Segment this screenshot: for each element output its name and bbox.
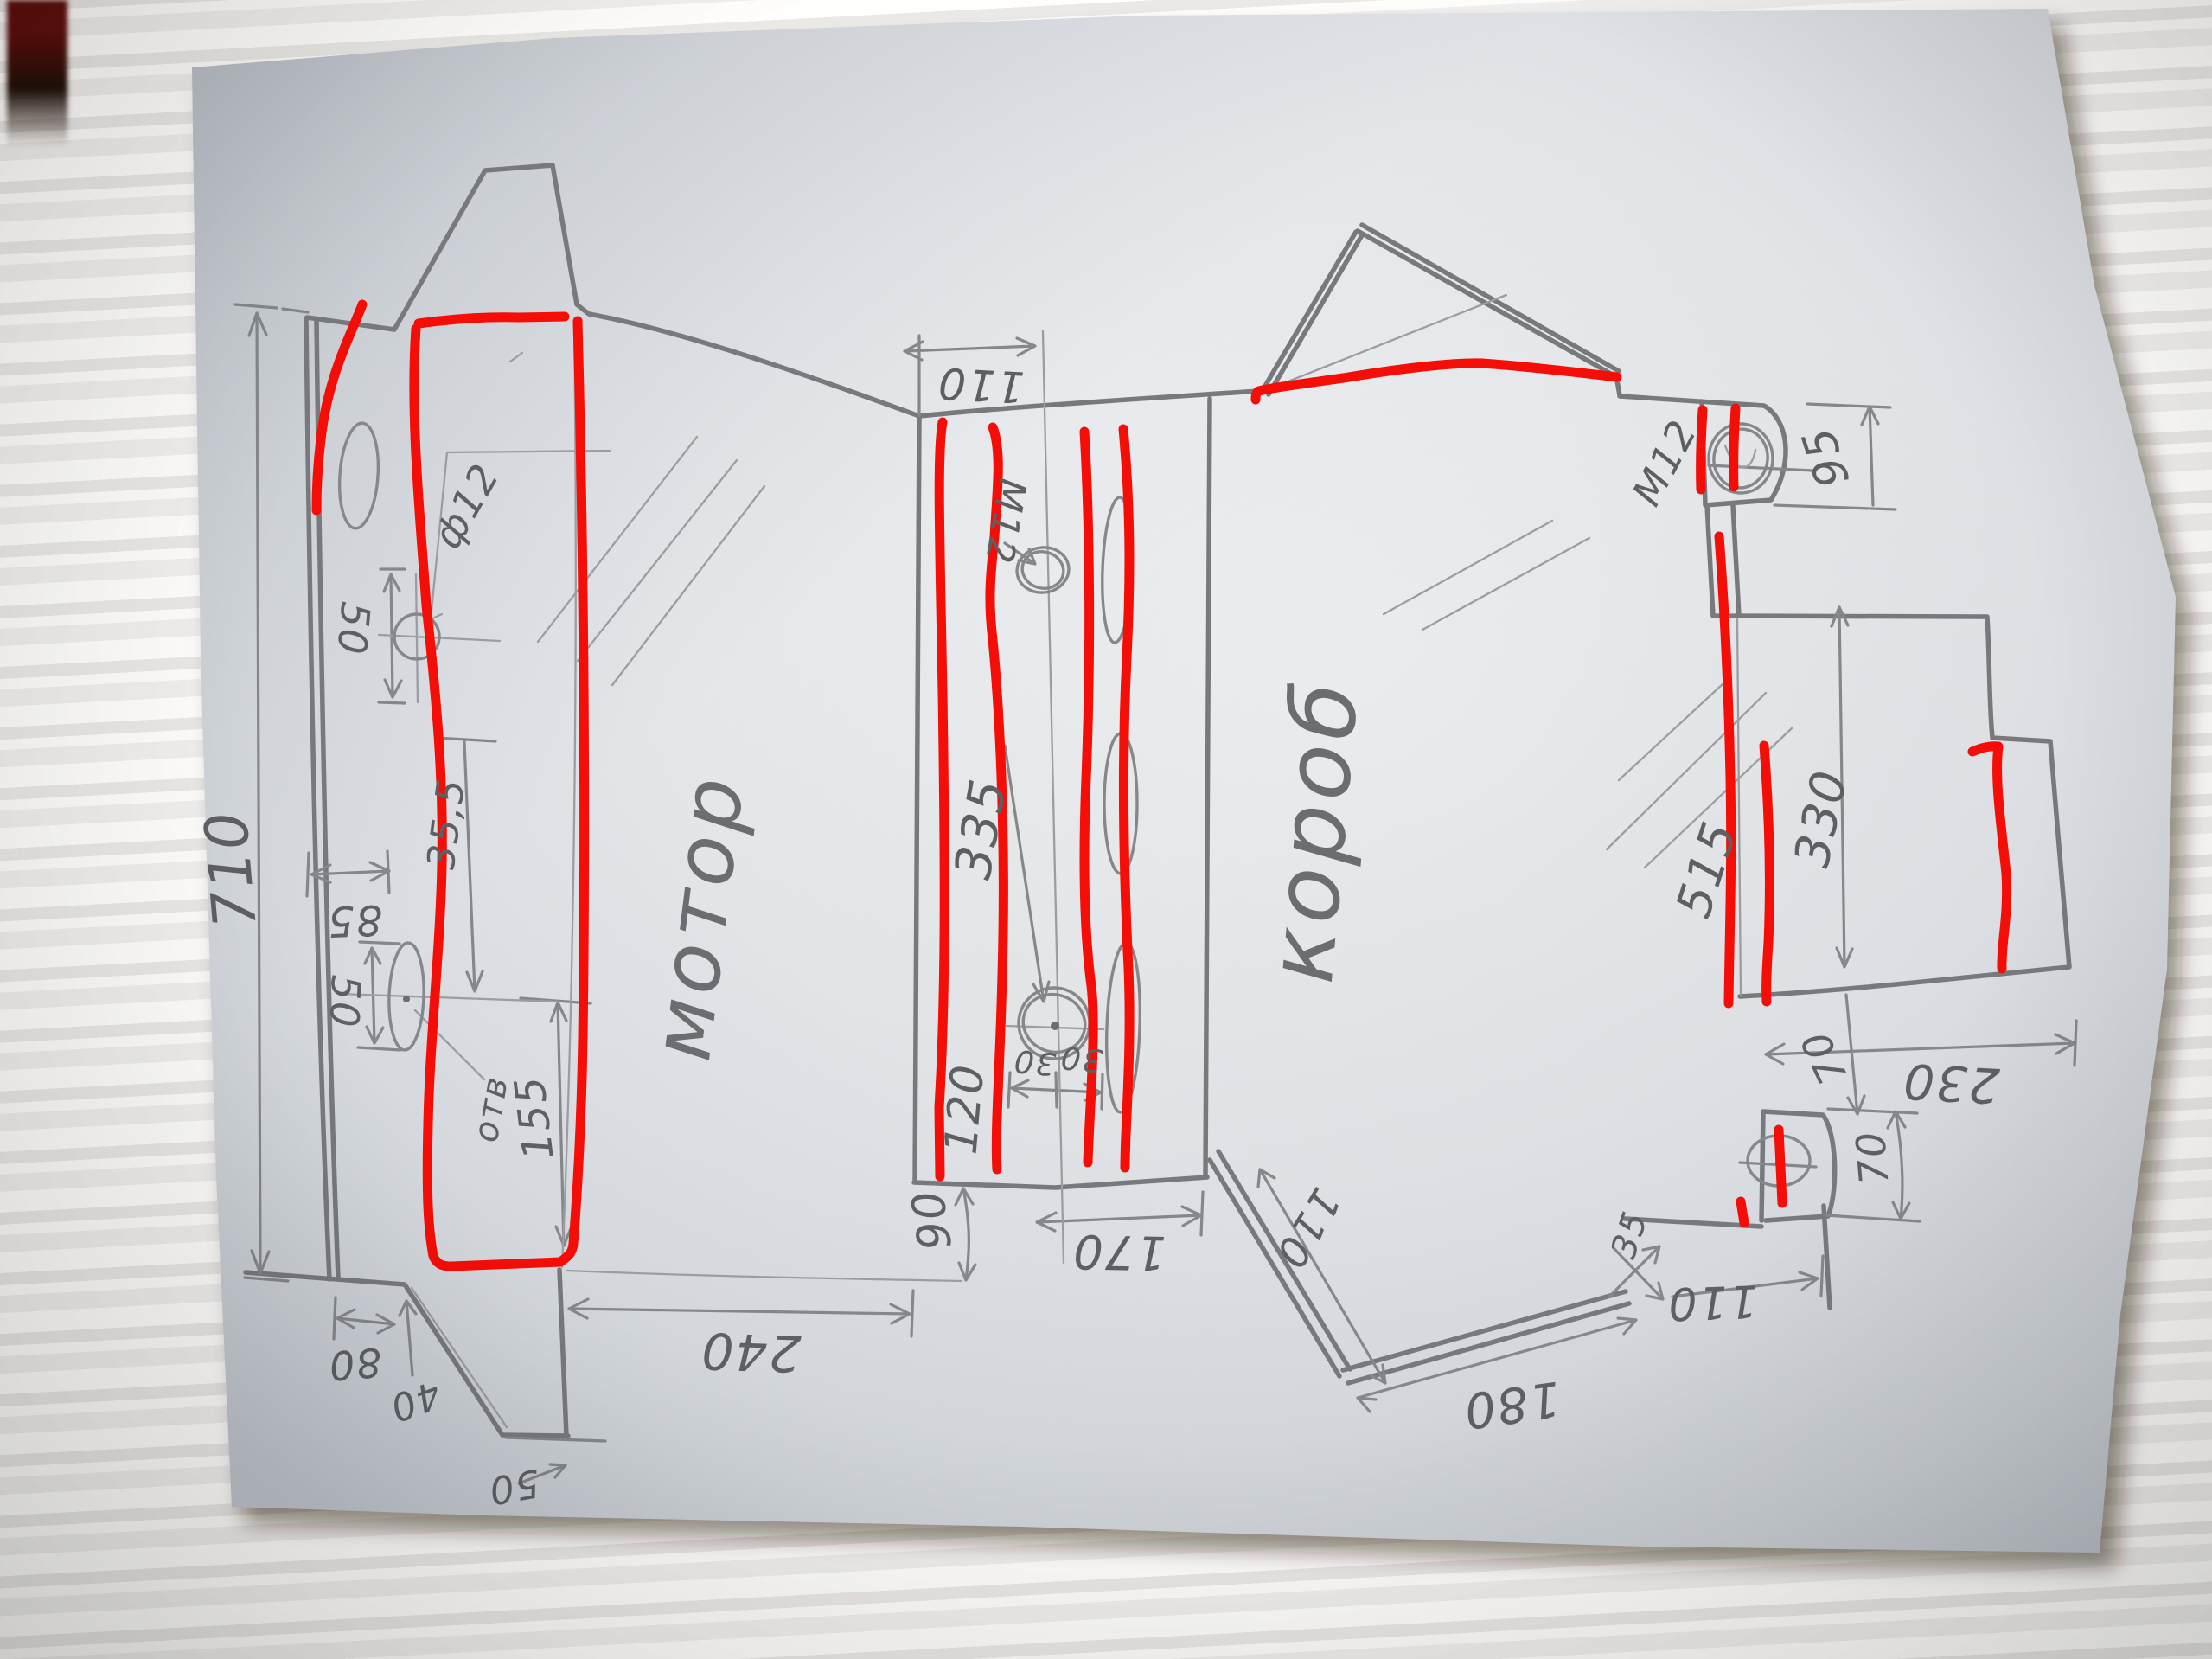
dim-230: 230 [1901, 1052, 2001, 1113]
dim-hole-pitch-top: 50 [328, 600, 379, 658]
dim-hole-pitch-mid: 50 [321, 974, 369, 1029]
paper-tone-overlay [192, 9, 2176, 1553]
dim-rail-lower: 120 [936, 1061, 995, 1156]
dim-30-right: 30 [1058, 1039, 1103, 1078]
dim-gap-170: 170 [1071, 1224, 1167, 1280]
sketch-canvas: 710 85 ф12 50 35,5 50 155 отв 80 40 50 м… [0, 0, 2212, 1659]
hole-30-30-center [1051, 1022, 1059, 1030]
dim-bracket-110: 110 [1665, 1274, 1758, 1329]
dim-step-90: 90 [902, 1186, 962, 1254]
dim-30-left: 30 [1011, 1042, 1057, 1081]
tall-hole-center [403, 996, 410, 1002]
dim-foot-50: 50 [484, 1460, 543, 1513]
dim-70-lower: 70 [1846, 1129, 1897, 1187]
dim-rail-top-offset: 110 [936, 357, 1026, 412]
dim-overall-height: 710 [192, 808, 271, 931]
paper [192, 9, 2176, 1553]
photo-of-sketch: 710 85 ф12 50 35,5 50 155 отв 80 40 50 м… [0, 0, 2212, 1659]
dim-slot-offset: 85 [325, 895, 383, 945]
dim-foot-80: 80 [326, 1338, 384, 1389]
dim-gap-240: 240 [699, 1321, 802, 1383]
